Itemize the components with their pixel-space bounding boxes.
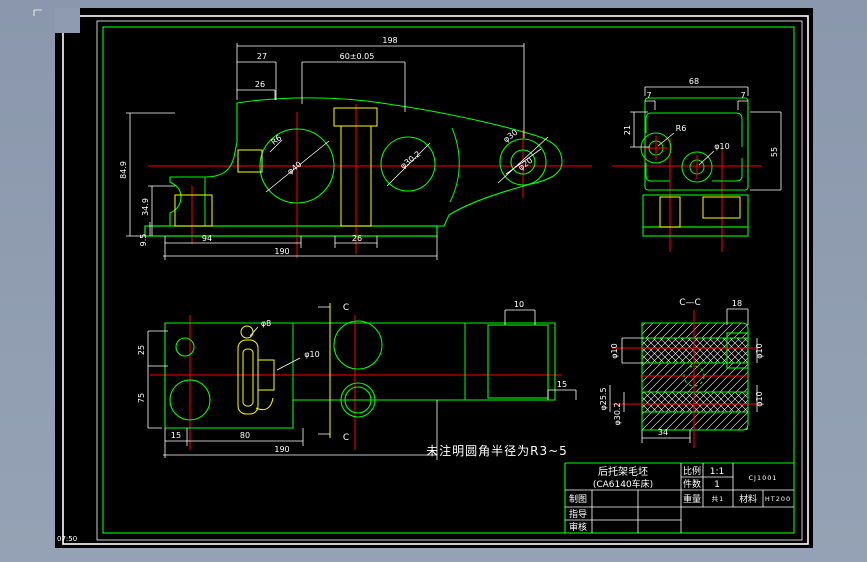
dim-label: 34 [658, 428, 668, 437]
dim-label: 7 [740, 91, 745, 100]
material-label: 材料 [739, 493, 757, 505]
dim-label: 21 [623, 125, 632, 135]
dim-label: φ10 [304, 350, 319, 359]
dim-label: 190 [274, 445, 289, 454]
qty-value: 1 [714, 480, 720, 490]
drafter-label: 制图 [569, 493, 587, 505]
dim-label: 190 [274, 247, 289, 256]
dim-label: 55 [770, 147, 779, 157]
dim-label: 84.9 [119, 161, 128, 179]
qty-label: 件数 [683, 478, 701, 490]
dim-label: φ30.2 [613, 402, 622, 425]
scale-label: 比例 [683, 465, 701, 477]
dim-label: 15 [557, 380, 567, 389]
status-text: 07:50 [57, 535, 77, 543]
drawing-number: CJ1001 [749, 474, 778, 482]
dim-label: φ10 [755, 343, 764, 358]
dim-label: φ10 [714, 142, 729, 151]
dim-label: 26 [352, 234, 362, 243]
dim-label: 68 [689, 77, 699, 86]
fillet-note: 未注明圆角半径为R3~5 [426, 443, 568, 458]
dim-label: R6 [676, 124, 687, 133]
section-flag: C [343, 303, 349, 313]
dim-label: 80 [240, 431, 250, 440]
dim-label: 10 [514, 300, 524, 309]
dim-label: 7 [646, 91, 651, 100]
dim-label: 9.5 [139, 234, 148, 247]
dim-label: 75 [137, 393, 146, 403]
dim-label: φ8 [261, 319, 271, 328]
advisor-label: 指导 [569, 508, 587, 520]
checker-label: 审核 [569, 521, 587, 533]
part-machine: (CA6140车床) [593, 478, 653, 490]
dim-label: 18 [732, 299, 742, 308]
weight-label: 重量 [683, 493, 701, 505]
dim-label: 34.9 [141, 198, 150, 216]
scale-value: 1:1 [710, 467, 724, 477]
dim-label: φ25.5 [599, 387, 608, 410]
cad-model-viewport[interactable]: 198 27 60±0.05 26 R6 φ40 φ30.2 φ30 φ20 8… [0, 0, 867, 562]
dim-label: 25 [137, 345, 146, 355]
dim-label: 27 [257, 52, 267, 61]
dim-label: 94 [202, 234, 212, 243]
dim-label: 15 [171, 431, 181, 440]
cad-window: 198 27 60±0.05 26 R6 φ40 φ30.2 φ30 φ20 8… [0, 0, 867, 562]
material-value: HT200 [765, 495, 791, 503]
dim-label: 198 [382, 36, 397, 45]
dim-label: 60±0.05 [340, 52, 375, 61]
weight-value: 共1 [712, 494, 725, 503]
dim-label: φ10 [610, 343, 619, 358]
section-title: C—C [679, 298, 701, 308]
dim-label: φ10 [755, 391, 764, 406]
section-flag: C [343, 433, 349, 443]
part-name: 后托架毛坯 [598, 465, 648, 478]
dim-label: 26 [255, 80, 265, 89]
